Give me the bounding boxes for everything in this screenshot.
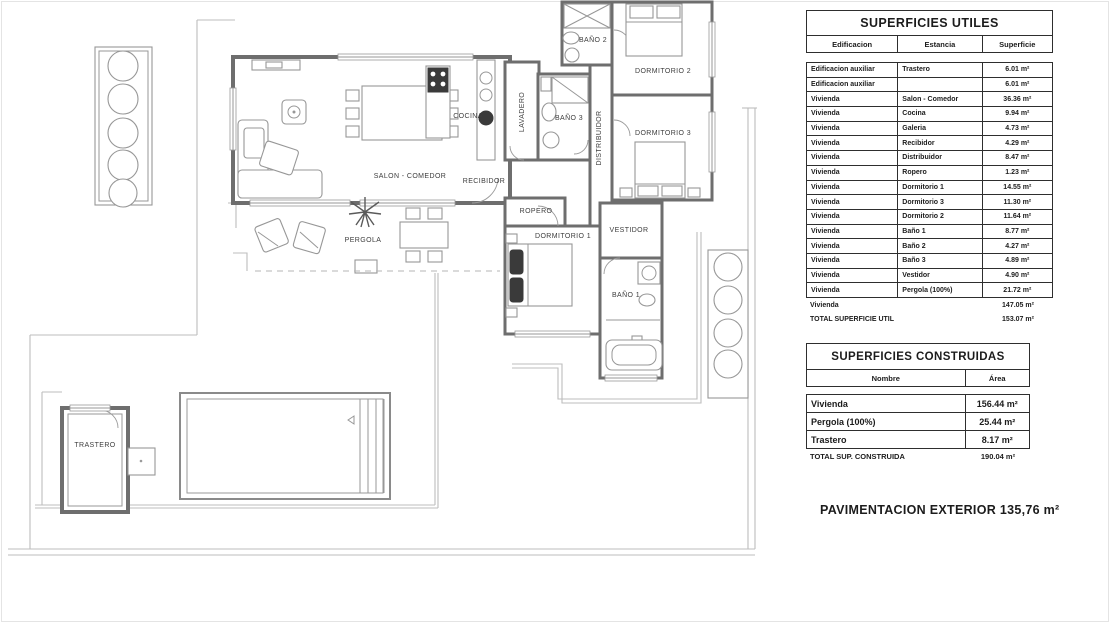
table-cell: 14.55 m² — [983, 181, 1052, 195]
room-label-lavadero: LAVADERO — [519, 92, 526, 132]
table-cell: 8.77 m² — [983, 225, 1052, 239]
table-row: Edificacion auxiliar6.01 m² — [807, 78, 1052, 93]
table-cell: Vivienda — [807, 395, 966, 412]
table-cell: Trastero — [807, 431, 966, 448]
table-cell: Vivienda — [807, 195, 898, 209]
table-cell: Edificacion auxiliar — [807, 78, 898, 92]
ceiling-fan-icon — [282, 100, 306, 124]
table-body: Vivienda156.44 m²Pergola (100%)25.44 m²T… — [806, 394, 1030, 449]
room-label-dormitorio2: DORMITORIO 2 — [635, 68, 691, 75]
table-cell: Vivienda — [807, 210, 898, 224]
table-cell: 4.90 m² — [983, 269, 1052, 283]
table-cell: TOTAL SUPERFICIE UTIL — [806, 312, 983, 326]
table-cell: Edificacion auxiliar — [807, 63, 898, 77]
table-cell: Ropero — [898, 166, 982, 180]
bed-dormitorio-1 — [506, 234, 572, 317]
room-label-bano2: BAÑO 2 — [579, 35, 607, 44]
table-cell: Vivienda — [807, 136, 898, 150]
column-header-nombre: Nombre — [807, 370, 966, 386]
table-cell: Vivienda — [807, 151, 898, 165]
room-label-bano1: BAÑO 1 — [612, 290, 640, 299]
table-cell: Vivienda — [806, 298, 983, 312]
table-cell: 153.07 m² — [983, 312, 1053, 326]
table-row: ViviendaSalon - Comedor36.36 m² — [807, 92, 1052, 107]
table-cell: 21.72 m² — [983, 283, 1052, 297]
table-cell — [898, 78, 982, 92]
table-summary: Vivienda147.05 m²TOTAL SUPERFICIE UTIL15… — [806, 298, 1053, 326]
table-title: SUPERFICIES CONSTRUIDAS — [807, 344, 1029, 370]
table-row: ViviendaDistribuidor8.47 m² — [807, 151, 1052, 166]
floor-plan-sheet: { "floor_plan": { "rooms": [ {"id":"salo… — [0, 0, 1110, 623]
tv-unit — [252, 60, 300, 70]
table-cell: 6.01 m² — [983, 63, 1052, 77]
floor-plan-drawing: SALON - COMEDOR COCINA LAVADERO RECIBIDO… — [0, 0, 790, 623]
table-cell: Salon - Comedor — [898, 92, 982, 106]
column-header-estancia: Estancia — [898, 36, 982, 52]
planter-right — [708, 250, 748, 398]
room-label-pergola: PERGOLA — [345, 237, 382, 244]
table-row: ViviendaDormitorio 211.64 m² — [807, 210, 1052, 225]
table-row: ViviendaRecibidor4.29 m² — [807, 136, 1052, 151]
table-row: ViviendaCocina9.94 m² — [807, 107, 1052, 122]
table-row: TOTAL SUP. CONSTRUIDA190.04 m² — [806, 449, 1030, 463]
trastero-building — [62, 408, 155, 512]
table-cell: Vivienda — [807, 254, 898, 268]
table-cell: Pergola (100%) — [898, 283, 982, 297]
table-row: ViviendaBaño 24.27 m² — [807, 239, 1052, 254]
column-header-superficie: Superficie — [983, 36, 1052, 52]
table-cell: Vivienda — [807, 166, 898, 180]
table-cell: 4.89 m² — [983, 254, 1052, 268]
table-cell: 4.73 m² — [983, 122, 1052, 136]
room-label-dormitorio3: DORMITORIO 3 — [635, 130, 691, 137]
table-body: Edificacion auxiliarTrastero6.01 m²Edifi… — [806, 62, 1053, 298]
table-cell: 4.29 m² — [983, 136, 1052, 150]
kitchen-island — [426, 66, 450, 138]
table-cell: TOTAL SUP. CONSTRUIDA — [806, 449, 966, 463]
table-cell: 6.01 m² — [983, 78, 1052, 92]
table-cell: 156.44 m² — [966, 395, 1029, 412]
table-cell: Dormitorio 2 — [898, 210, 982, 224]
table-cell: Baño 1 — [898, 225, 982, 239]
table-cell: Dormitorio 3 — [898, 195, 982, 209]
table-row: ViviendaPergola (100%)21.72 m² — [807, 283, 1052, 297]
column-header-edificacion: Edificacion — [807, 36, 898, 52]
bed-dormitorio-2 — [626, 4, 682, 56]
table-cell: Vivienda — [807, 92, 898, 106]
table-cell: Vivienda — [807, 283, 898, 297]
superficies-utiles-table: SUPERFICIES UTILES Edificacion Estancia … — [806, 10, 1053, 326]
table-row: Trastero8.17 m² — [807, 431, 1029, 448]
room-label-ropero: ROPERO — [520, 208, 553, 215]
table-cell: Baño 2 — [898, 239, 982, 253]
table-row: ViviendaBaño 18.77 m² — [807, 225, 1052, 240]
room-label-distribuidor: DISTRIBUIDOR — [596, 111, 603, 166]
table-cell: Vivienda — [807, 269, 898, 283]
column-header-area: Área — [966, 370, 1029, 386]
swimming-pool — [180, 393, 390, 499]
table-cell: Vivienda — [807, 122, 898, 136]
room-label-vestidor: VESTIDOR — [610, 227, 649, 234]
table-row: ViviendaGaleria4.73 m² — [807, 122, 1052, 137]
room-label-cocina: COCINA — [453, 113, 483, 120]
table-row: ViviendaDormitorio 114.55 m² — [807, 181, 1052, 196]
table-cell: Distribuidor — [898, 151, 982, 165]
table-header: SUPERFICIES CONSTRUIDAS Nombre Área — [806, 343, 1030, 387]
table-header: SUPERFICIES UTILES Edificacion Estancia … — [806, 10, 1053, 53]
pavimentacion-exterior-note: PAVIMENTACION EXTERIOR 135,76 m² — [820, 503, 1060, 517]
table-summary: TOTAL SUP. CONSTRUIDA190.04 m² — [806, 449, 1030, 463]
table-cell: 147.05 m² — [983, 298, 1053, 312]
table-cell: Vivienda — [807, 225, 898, 239]
table-row: Vivienda147.05 m² — [806, 298, 1053, 312]
table-cell: Trastero — [898, 63, 982, 77]
kitchen-counter — [477, 60, 495, 160]
table-row: Edificacion auxiliarTrastero6.01 m² — [807, 63, 1052, 78]
table-cell: 9.94 m² — [983, 107, 1052, 121]
table-cell: Vivienda — [807, 107, 898, 121]
room-label-dormitorio1: DORMITORIO 1 — [535, 233, 591, 240]
superficies-construidas-table: SUPERFICIES CONSTRUIDAS Nombre Área Vivi… — [806, 343, 1030, 463]
table-cell: 8.17 m² — [966, 431, 1029, 448]
room-label-salon: SALON - COMEDOR — [374, 173, 447, 180]
planter-left — [95, 47, 152, 207]
table-cell: Baño 3 — [898, 254, 982, 268]
room-label-trastero: TRASTERO — [74, 442, 115, 449]
table-cell: 8.47 m² — [983, 151, 1052, 165]
table-cell: 1.23 m² — [983, 166, 1052, 180]
table-cell: Cocina — [898, 107, 982, 121]
table-row: Vivienda156.44 m² — [807, 395, 1029, 413]
table-row: TOTAL SUPERFICIE UTIL153.07 m² — [806, 312, 1053, 326]
table-cell: Vestidor — [898, 269, 982, 283]
table-row: ViviendaVestidor4.90 m² — [807, 269, 1052, 284]
table-cell: Pergola (100%) — [807, 413, 966, 430]
table-cell: Vivienda — [807, 239, 898, 253]
room-label-recibidor: RECIBIDOR — [463, 178, 506, 185]
table-cell: Vivienda — [807, 181, 898, 195]
table-cell: 36.36 m² — [983, 92, 1052, 106]
table-row: ViviendaDormitorio 311.30 m² — [807, 195, 1052, 210]
table-cell: Galeria — [898, 122, 982, 136]
table-row: ViviendaBaño 34.89 m² — [807, 254, 1052, 269]
room-label-bano3: BAÑO 3 — [555, 113, 583, 122]
table-cell: 11.30 m² — [983, 195, 1052, 209]
table-cell: Dormitorio 1 — [898, 181, 982, 195]
table-cell: 25.44 m² — [966, 413, 1029, 430]
table-cell: Recibidor — [898, 136, 982, 150]
table-cell: 11.64 m² — [983, 210, 1052, 224]
table-title: SUPERFICIES UTILES — [807, 11, 1052, 36]
table-cell: 190.04 m² — [966, 449, 1030, 463]
table-cell: 4.27 m² — [983, 239, 1052, 253]
table-row: Pergola (100%)25.44 m² — [807, 413, 1029, 431]
pergola-furniture — [254, 197, 448, 273]
table-row: ViviendaRopero1.23 m² — [807, 166, 1052, 181]
